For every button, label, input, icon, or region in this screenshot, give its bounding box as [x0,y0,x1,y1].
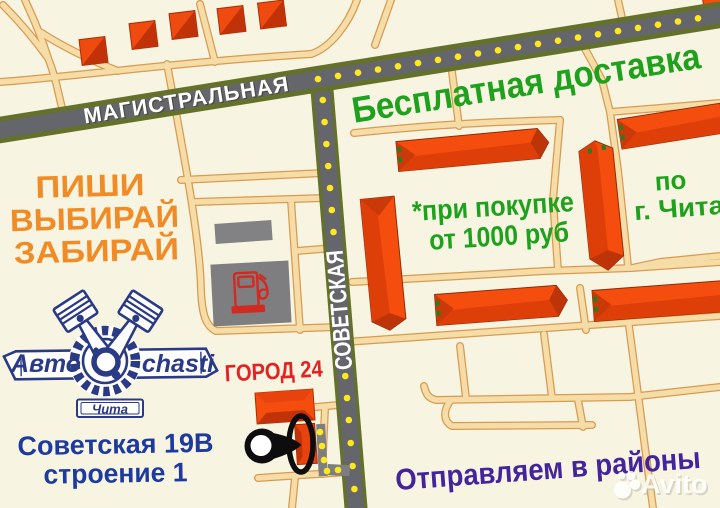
svg-text:Советская 19В: Советская 19В [17,428,213,461]
svg-text:Avito: Avito [641,469,708,499]
svg-text:по: по [654,164,688,196]
svg-text:строение 1: строение 1 [43,457,188,490]
svg-text:ЗАБИРАЙ: ЗАБИРАЙ [14,230,180,270]
svg-text:Чита: Чита [92,401,128,416]
svg-text:г. Чита: г. Чита [633,190,720,226]
svg-text:chasti: chasti [142,350,215,378]
svg-text:ГОРОД 24: ГОРОД 24 [224,355,323,386]
svg-text:Авто: Авто [10,350,81,378]
